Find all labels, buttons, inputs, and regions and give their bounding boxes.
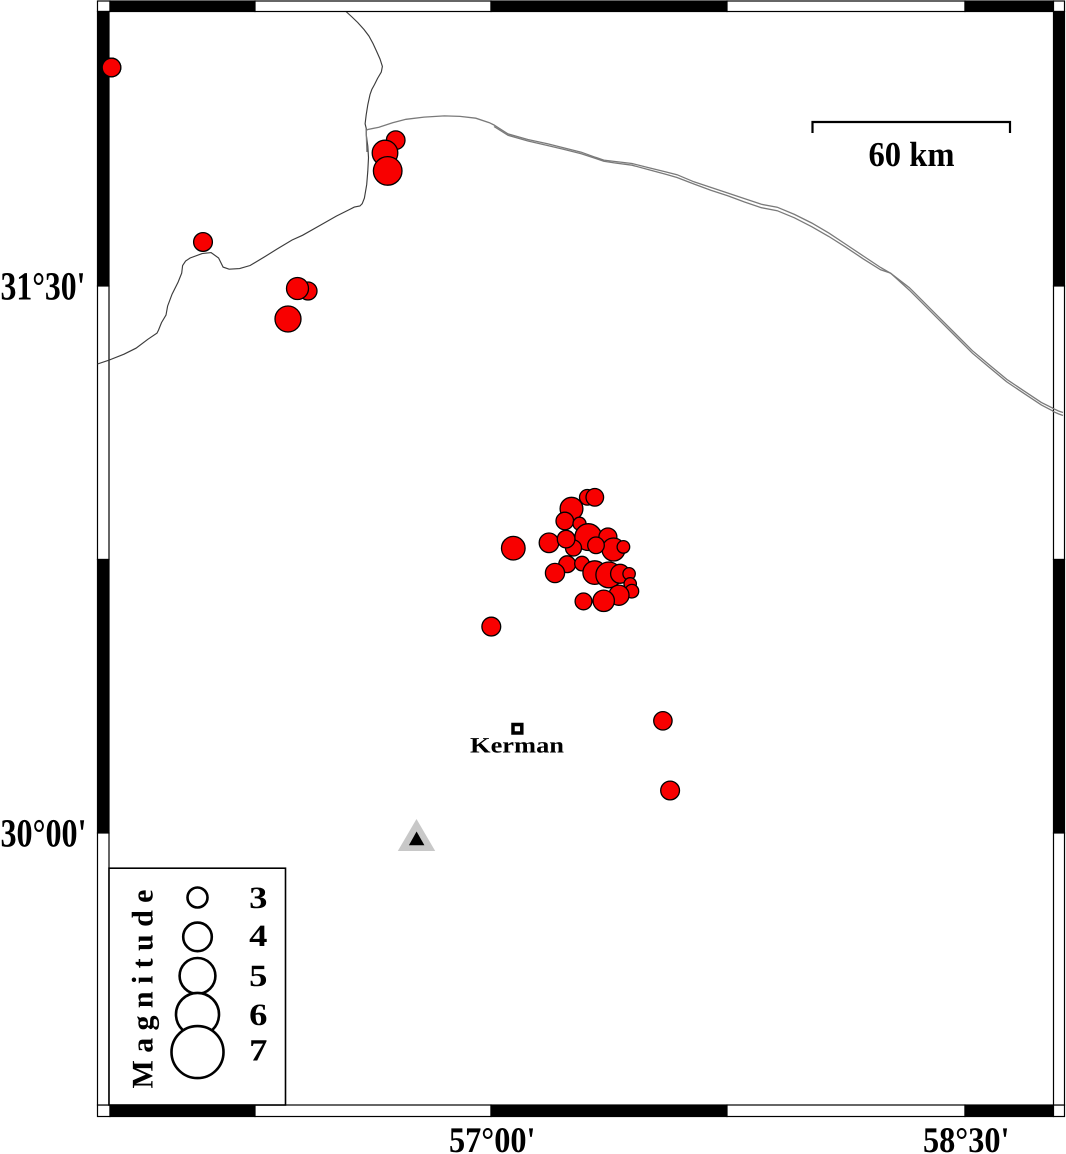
svg-text:60 km: 60 km bbox=[869, 135, 955, 174]
svg-text:Kerman: Kerman bbox=[470, 733, 564, 758]
svg-text:7: 7 bbox=[249, 1033, 267, 1068]
svg-text:Magnitude: Magnitude bbox=[127, 885, 160, 1089]
svg-text:30°00': 30°00' bbox=[1, 811, 87, 856]
svg-text:57°00': 57°00' bbox=[449, 1120, 536, 1154]
svg-text:31°30': 31°30' bbox=[1, 264, 86, 309]
svg-text:5: 5 bbox=[249, 958, 267, 993]
svg-text:3: 3 bbox=[249, 880, 267, 915]
svg-text:6: 6 bbox=[249, 997, 267, 1032]
svg-text:58°30': 58°30' bbox=[923, 1120, 1010, 1154]
svg-text:4: 4 bbox=[249, 918, 267, 953]
